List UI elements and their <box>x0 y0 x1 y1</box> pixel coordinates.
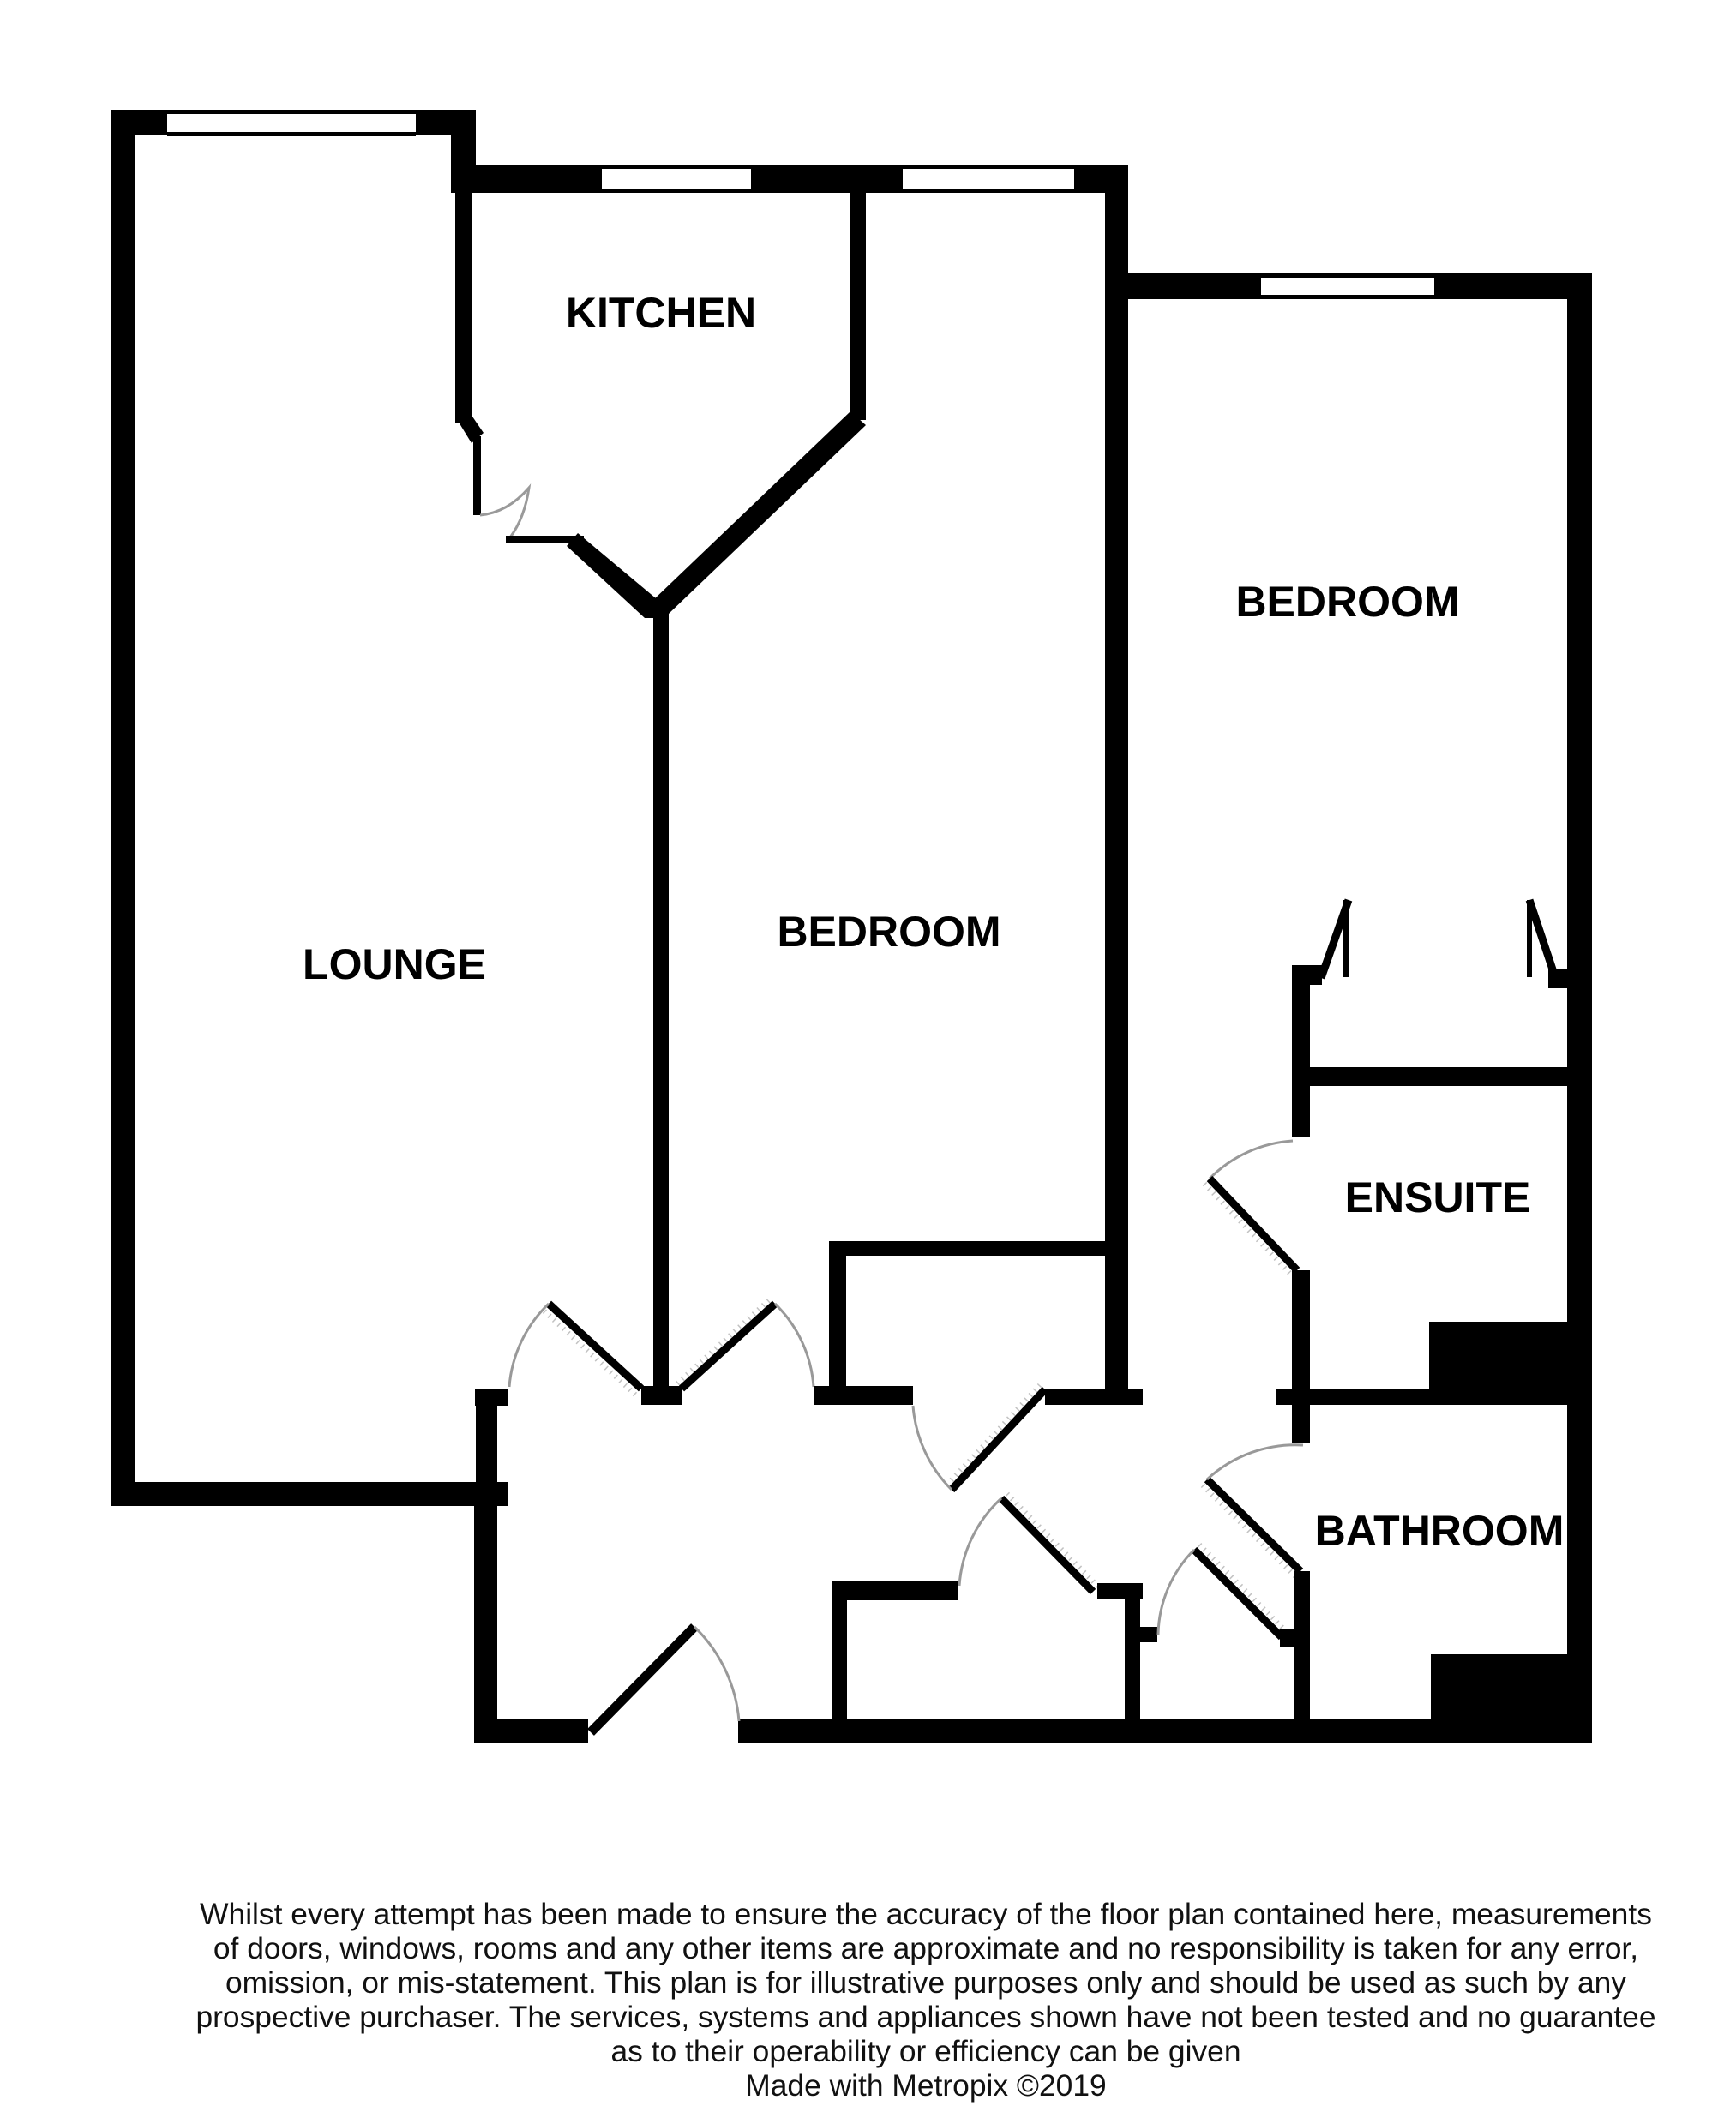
svg-text:Made with Metropix ©2019: Made with Metropix ©2019 <box>745 2068 1106 2103</box>
svg-text:LOUNGE: LOUNGE <box>303 940 486 988</box>
svg-text:BEDROOM: BEDROOM <box>777 908 1000 956</box>
svg-text:of doors, windows, rooms and a: of doors, windows, rooms and any other i… <box>213 1931 1638 1965</box>
svg-text:KITCHEN: KITCHEN <box>566 289 756 337</box>
svg-text:BATHROOM: BATHROOM <box>1315 1507 1565 1555</box>
svg-text:ENSUITE: ENSUITE <box>1345 1173 1531 1221</box>
svg-text:BEDROOM: BEDROOM <box>1235 578 1459 626</box>
svg-text:prospective purchaser. The ser: prospective purchaser. The services, sys… <box>195 2000 1655 2034</box>
svg-text:as to their operability or eff: as to their operability or efficiency ca… <box>610 2034 1240 2068</box>
svg-text:Whilst every attempt has been: Whilst every attempt has been made to en… <box>200 1897 1652 1931</box>
svg-text:omission, or mis-statement. Th: omission, or mis-statement. This plan is… <box>225 1965 1626 2000</box>
